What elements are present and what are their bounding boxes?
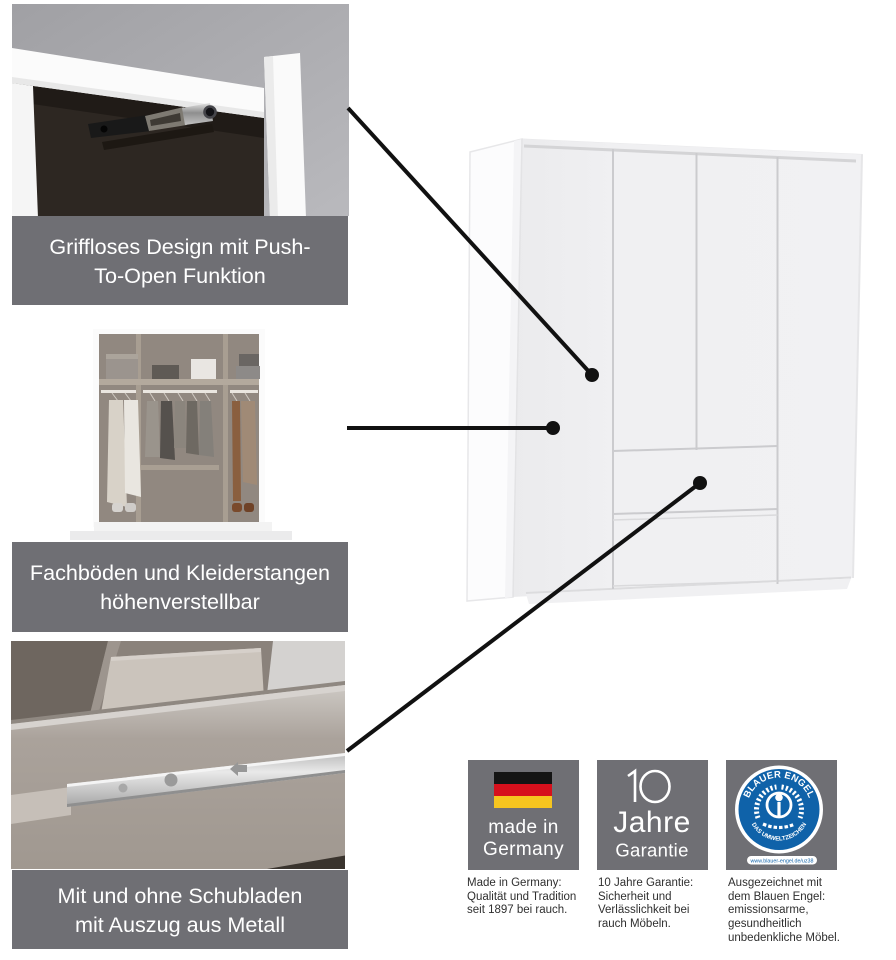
svg-text:www.blauer-engel.de/uz38: www.blauer-engel.de/uz38 [750,858,814,864]
svg-text:Jahre: Jahre [613,806,691,839]
svg-text:Garantie: Garantie [615,840,688,861]
